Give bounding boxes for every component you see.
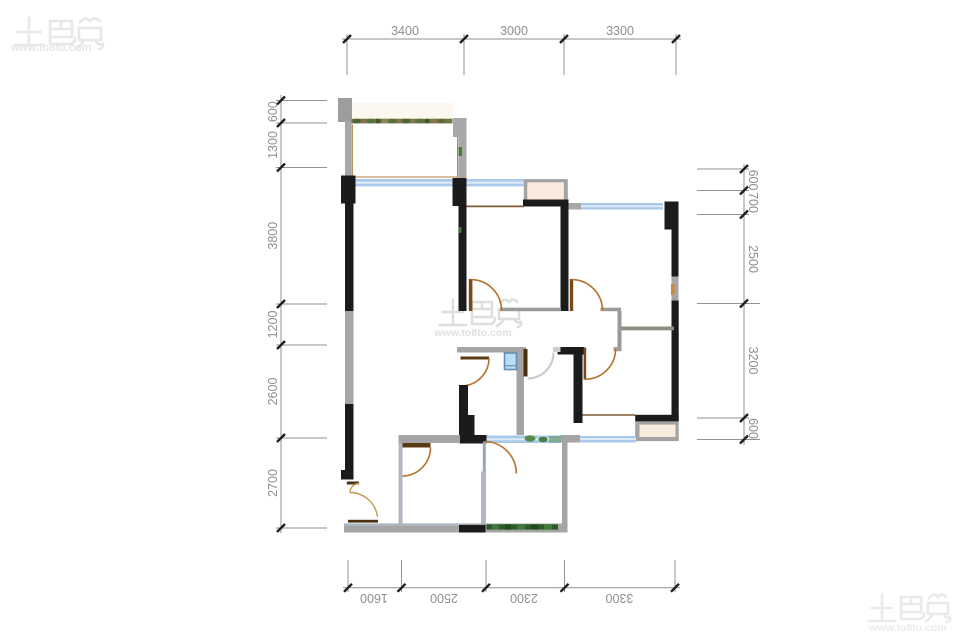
- svg-text:3000: 3000: [500, 24, 528, 38]
- svg-text:700: 700: [746, 192, 760, 213]
- svg-text:www.to8to.com: www.to8to.com: [10, 42, 92, 54]
- svg-text:2700: 2700: [266, 469, 280, 497]
- svg-text:3300: 3300: [606, 591, 634, 605]
- svg-text:2600: 2600: [266, 378, 280, 406]
- svg-text:www.to8to.com: www.to8to.com: [868, 622, 946, 634]
- svg-text:600: 600: [746, 170, 760, 191]
- svg-text:3800: 3800: [266, 222, 280, 250]
- svg-text:600: 600: [746, 418, 760, 439]
- svg-text:1600: 1600: [360, 591, 388, 605]
- svg-text:3200: 3200: [746, 347, 760, 375]
- svg-text:www.to8to.com: www.to8to.com: [433, 327, 511, 339]
- svg-text:2500: 2500: [430, 591, 458, 605]
- svg-text:3400: 3400: [391, 24, 419, 38]
- svg-text:3300: 3300: [606, 24, 634, 38]
- svg-text:1300: 1300: [266, 131, 280, 159]
- svg-text:2300: 2300: [510, 591, 538, 605]
- svg-text:2500: 2500: [746, 245, 760, 273]
- svg-text:1200: 1200: [266, 311, 280, 339]
- svg-text:600: 600: [266, 101, 280, 122]
